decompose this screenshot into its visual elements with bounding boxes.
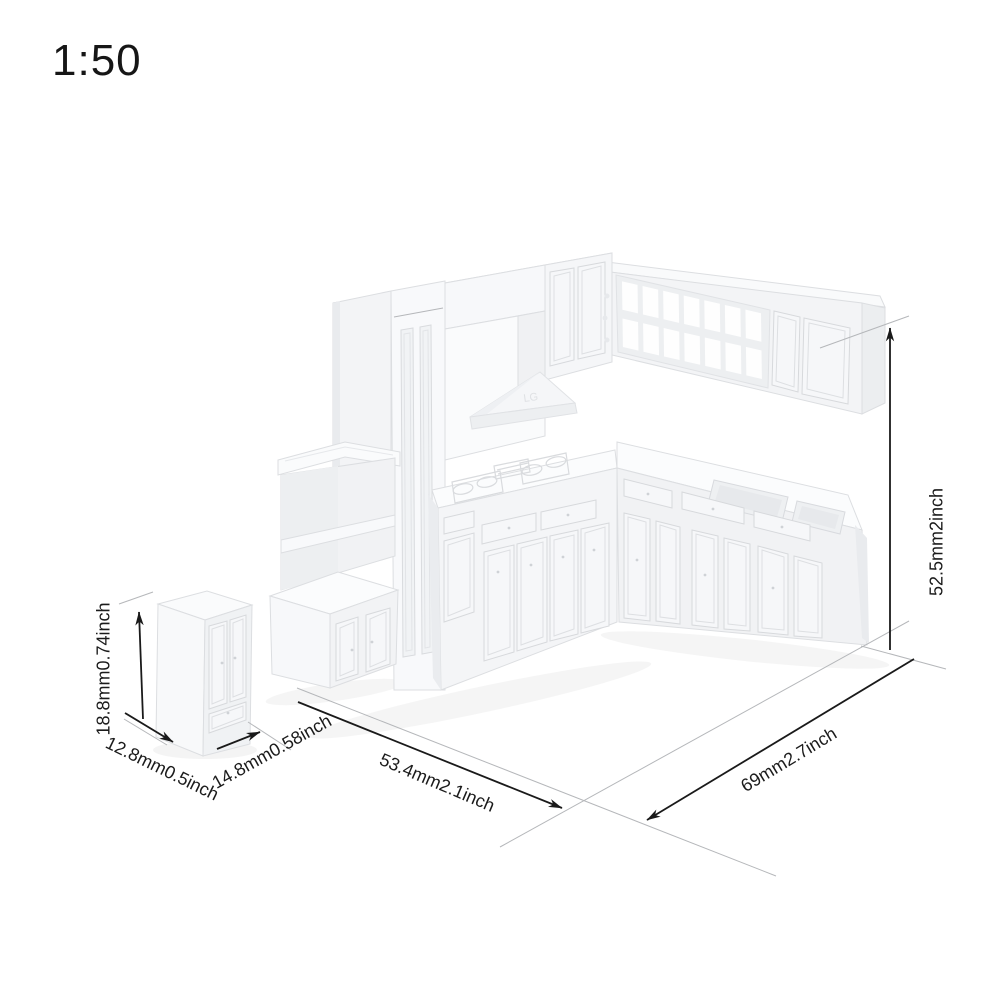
window-wall-end-panel <box>862 303 885 414</box>
base-cabinets-sink-run <box>617 442 869 645</box>
wall-end-edge <box>333 301 340 494</box>
corner-shelf-unit <box>270 442 400 688</box>
cabinet-door <box>336 617 358 681</box>
window-wall <box>607 262 885 414</box>
product-photo-canvas: LG <box>0 0 1000 1000</box>
hood-brand-embossing: LG <box>523 391 539 405</box>
arrow-small-cabinet-height <box>139 612 143 719</box>
base-cabinets-stove-run <box>428 450 617 690</box>
scale-ratio-label: 1:50 <box>52 36 142 86</box>
arrow-right-run-width <box>647 659 914 820</box>
dimension-label-small-cabinet-height: 18.8mm0.74inch <box>94 602 115 735</box>
column-groove <box>401 328 415 657</box>
small-cabinet <box>156 591 252 756</box>
small-cabinet-side <box>156 604 205 756</box>
cabinet-door <box>230 615 246 702</box>
kitchen-model-illustration: LG <box>0 0 1000 1000</box>
shelf-cavity-side <box>281 466 338 590</box>
dimension-label-wall-height: 52.5mm2inch <box>927 488 948 596</box>
